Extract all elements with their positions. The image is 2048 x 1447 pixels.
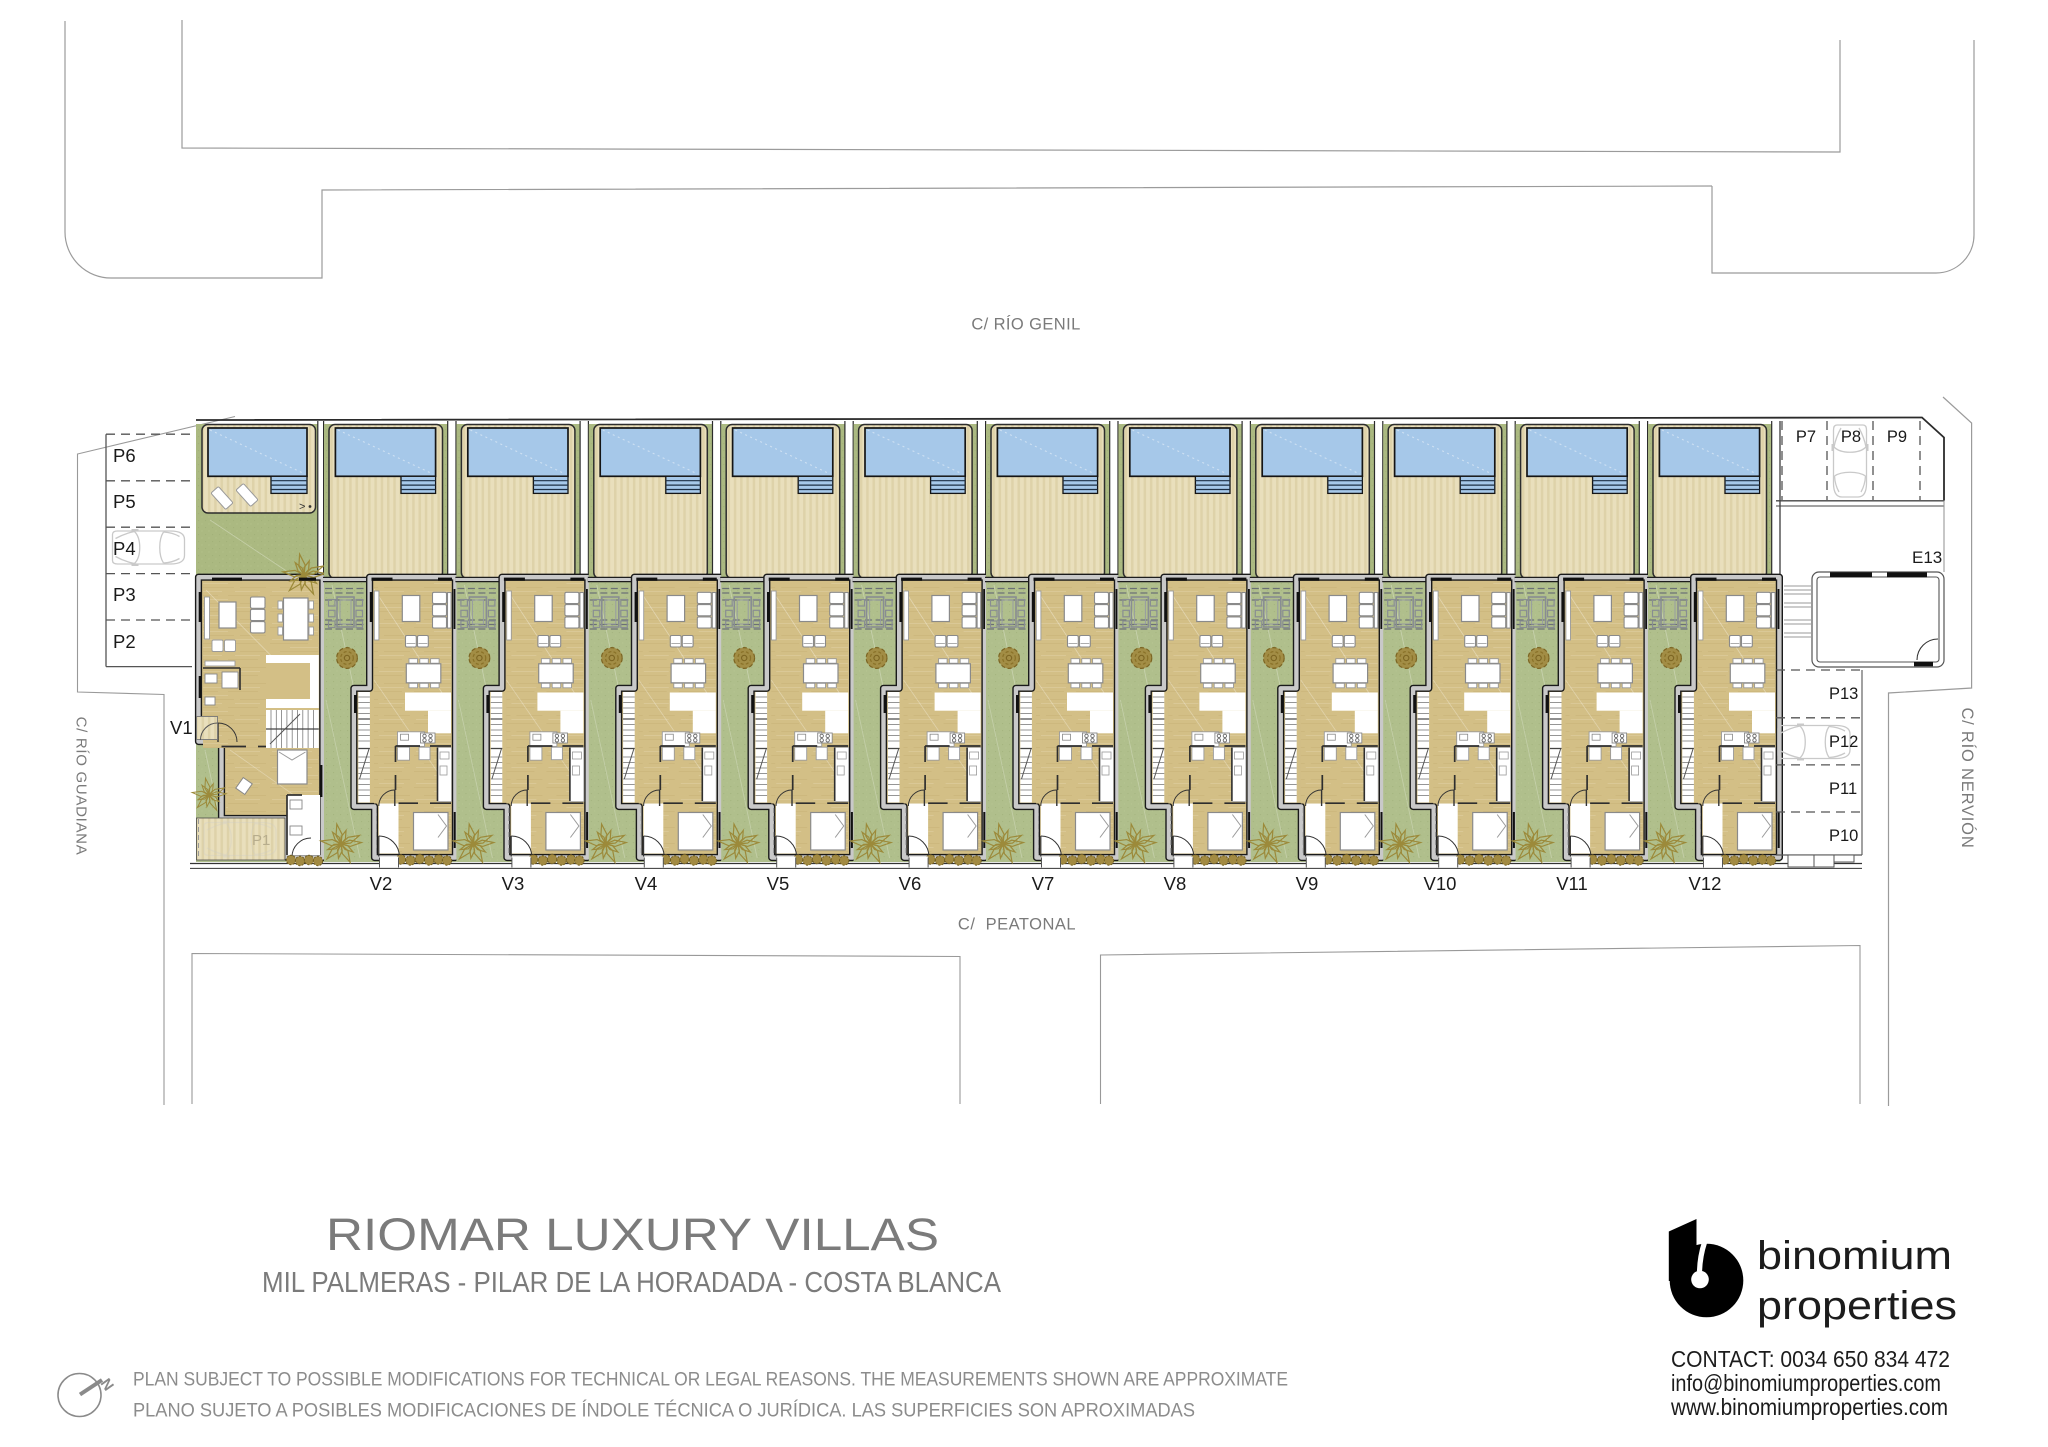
svg-text:P1: P1 xyxy=(252,832,270,849)
svg-text:C/ RÍO GUADIANA: C/ RÍO GUADIANA xyxy=(73,717,90,856)
svg-text:E13: E13 xyxy=(1912,548,1942,567)
svg-text:CONTACT: 0034 650 834 472: CONTACT: 0034 650 834 472 xyxy=(1671,1346,1950,1372)
svg-text:V1: V1 xyxy=(170,717,193,738)
svg-text:>: > xyxy=(299,501,305,513)
svg-text:V10: V10 xyxy=(1424,873,1457,894)
svg-text:P6: P6 xyxy=(113,445,136,466)
svg-text:RIOMAR LUXURY VILLAS: RIOMAR LUXURY VILLAS xyxy=(326,1209,939,1260)
svg-text:PLAN SUBJECT TO POSSIBLE MODIF: PLAN SUBJECT TO POSSIBLE MODIFICATIONS F… xyxy=(133,1369,1288,1391)
svg-text:PLANO SUJETO A POSIBLES MODIFI: PLANO SUJETO A POSIBLES MODIFICACIONES D… xyxy=(133,1399,1195,1422)
svg-text:P5: P5 xyxy=(113,491,136,512)
svg-text:V5: V5 xyxy=(767,873,790,894)
svg-text:V9: V9 xyxy=(1296,873,1319,894)
svg-text:P11: P11 xyxy=(1829,780,1857,798)
svg-text:P4: P4 xyxy=(113,538,136,559)
svg-text:V7: V7 xyxy=(1032,873,1055,894)
svg-text:V2: V2 xyxy=(370,873,393,894)
svg-text:properties: properties xyxy=(1757,1284,1957,1328)
svg-text:P13: P13 xyxy=(1829,685,1858,703)
svg-text:P3: P3 xyxy=(113,584,136,605)
svg-text:C/ PEATONAL: C/ PEATONAL xyxy=(958,916,1076,934)
svg-text:P7: P7 xyxy=(1796,428,1816,446)
svg-text:V12: V12 xyxy=(1689,873,1722,894)
svg-text:C/ RÍO NERVIÓN: C/ RÍO NERVIÓN xyxy=(1958,707,1977,848)
svg-text:P8: P8 xyxy=(1841,428,1861,446)
svg-text:V8: V8 xyxy=(1164,873,1187,894)
svg-text:P10: P10 xyxy=(1829,827,1858,845)
svg-text:binomium: binomium xyxy=(1757,1234,1952,1278)
svg-text:www.binomiumproperties.com: www.binomiumproperties.com xyxy=(1670,1394,1948,1420)
svg-text:P2: P2 xyxy=(113,631,136,652)
svg-text:V3: V3 xyxy=(502,873,525,894)
svg-text:V4: V4 xyxy=(635,873,658,894)
svg-text:V6: V6 xyxy=(899,873,922,894)
svg-text:P9: P9 xyxy=(1887,428,1907,446)
svg-text:MIL PALMERAS - PILAR DE LA HOR: MIL PALMERAS - PILAR DE LA HORADADA - CO… xyxy=(262,1267,1002,1299)
svg-text:info@binomiumproperties.com: info@binomiumproperties.com xyxy=(1671,1370,1941,1396)
svg-text:C/ RÍO GENIL: C/ RÍO GENIL xyxy=(971,315,1080,334)
svg-text:V11: V11 xyxy=(1556,873,1588,894)
svg-text:P12: P12 xyxy=(1829,733,1858,751)
